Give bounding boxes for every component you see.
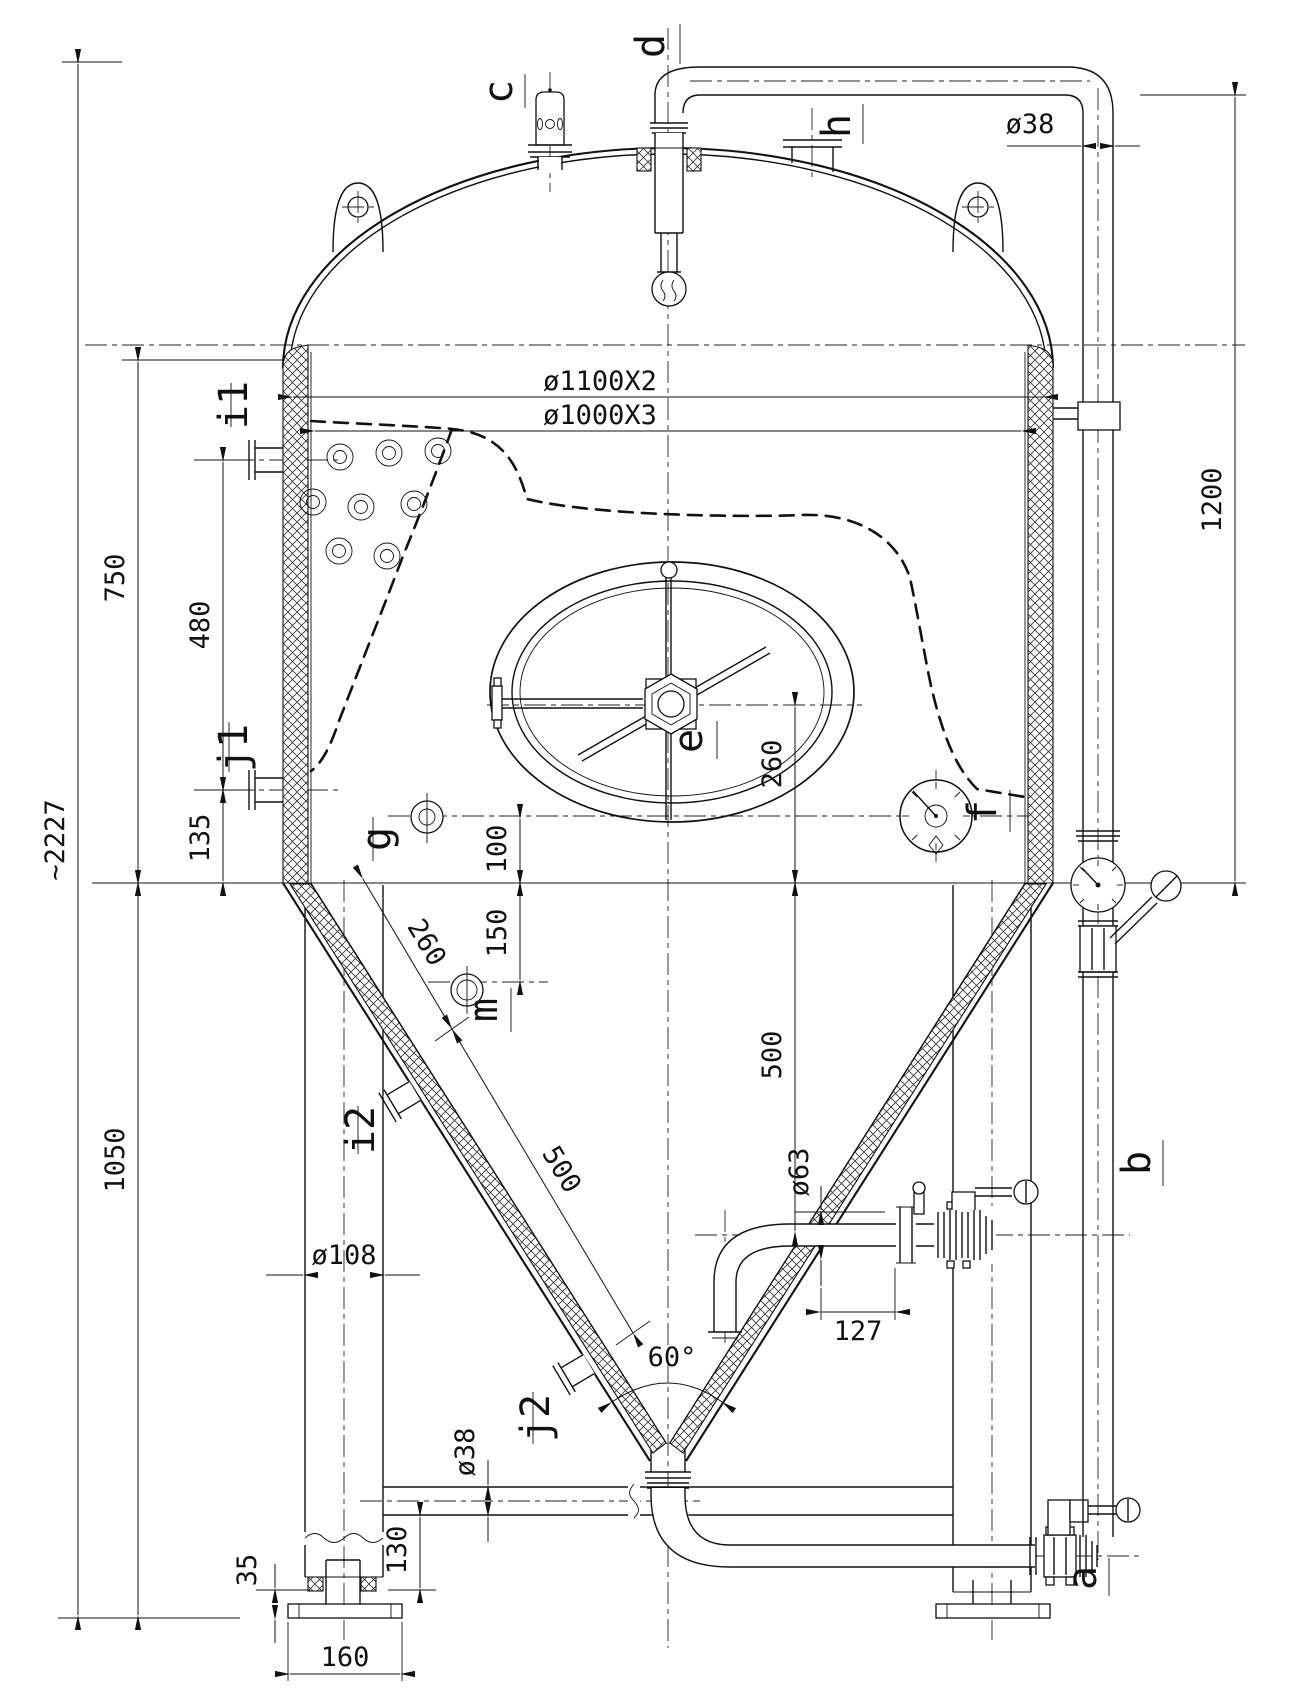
dim-racking-dia: ø63 <box>784 1148 815 1197</box>
label-drain-valve: a <box>1060 1566 1106 1590</box>
label-side-nozzle-lower: j1 <box>211 724 257 772</box>
bottom-drain <box>645 1450 1140 1585</box>
dim-port-h: 150 <box>482 909 513 958</box>
top-center-pipe-d <box>637 123 701 306</box>
label-side-nozzle-upper: i1 <box>211 381 257 429</box>
dim-cross-h: 130 <box>382 1526 413 1575</box>
label-top-pipe: d <box>628 34 674 58</box>
relief-valve-c <box>528 88 572 170</box>
dim-shell-od: ø1100X2 <box>543 366 657 397</box>
dim-sample-h: 100 <box>482 825 513 874</box>
label-racking-valve: b <box>1114 1151 1160 1175</box>
sample-port-g <box>411 793 443 843</box>
label-relief-valve: c <box>476 80 522 104</box>
pipe-pressure-gauge <box>1071 858 1125 912</box>
dim-lower-section: 1050 <box>100 1127 131 1192</box>
dimple-plate-spots <box>300 438 451 569</box>
dim-downpipe-dia: ø38 <box>1006 109 1055 140</box>
dim-cone-span-upper: 260 <box>400 914 452 972</box>
spray-ball <box>652 272 686 306</box>
dim-upper-shell: 750 <box>100 554 131 603</box>
dim-leg-dia: ø108 <box>311 1240 376 1271</box>
dim-foot-adj: 35 <box>232 1554 263 1587</box>
manway <box>490 562 854 822</box>
dim-cross-dia: ø38 <box>450 1428 481 1477</box>
pipe-valve-handle-ball <box>1151 871 1181 901</box>
label-thermometer: f <box>960 800 1006 824</box>
dim-cone-angle: 60° <box>648 1342 697 1373</box>
label-cone-nozzle-lower: j2 <box>513 1394 559 1442</box>
label-top-nozzle: h <box>814 114 860 138</box>
drain-valve-handle-bracket <box>1048 1500 1070 1535</box>
label-sample-port: g <box>354 827 400 851</box>
top-nozzle-h <box>783 140 842 172</box>
drawing-sheet: ~2227 750 1050 480 135 ø1100X2 ø1000X3 1… <box>0 0 1305 1704</box>
racking-valve-handle-bracket <box>952 1192 975 1210</box>
dim-cone-span-lower: 500 <box>535 1141 587 1199</box>
dim-downpipe-len: 1200 <box>1197 467 1228 532</box>
centerlines <box>85 28 1245 1648</box>
dim-racking-h: 500 <box>757 1031 788 1080</box>
label-cone-nozzle-upper: i2 <box>338 1106 384 1154</box>
dim-overall-height: ~2227 <box>40 799 71 880</box>
dim-left-offset: 135 <box>185 814 216 863</box>
dim-racking-x: 127 <box>834 1316 883 1347</box>
dim-foot-w: 160 <box>321 1642 370 1673</box>
dim-left-span: 480 <box>185 601 216 650</box>
label-manway: e <box>666 729 712 753</box>
fermenter-ga-drawing: ~2227 750 1050 480 135 ø1100X2 ø1000X3 1… <box>0 0 1305 1704</box>
dim-manway-h: 260 <box>757 740 788 789</box>
label-cone-port: m <box>461 998 507 1022</box>
dim-shell-id: ø1000X3 <box>543 400 657 431</box>
